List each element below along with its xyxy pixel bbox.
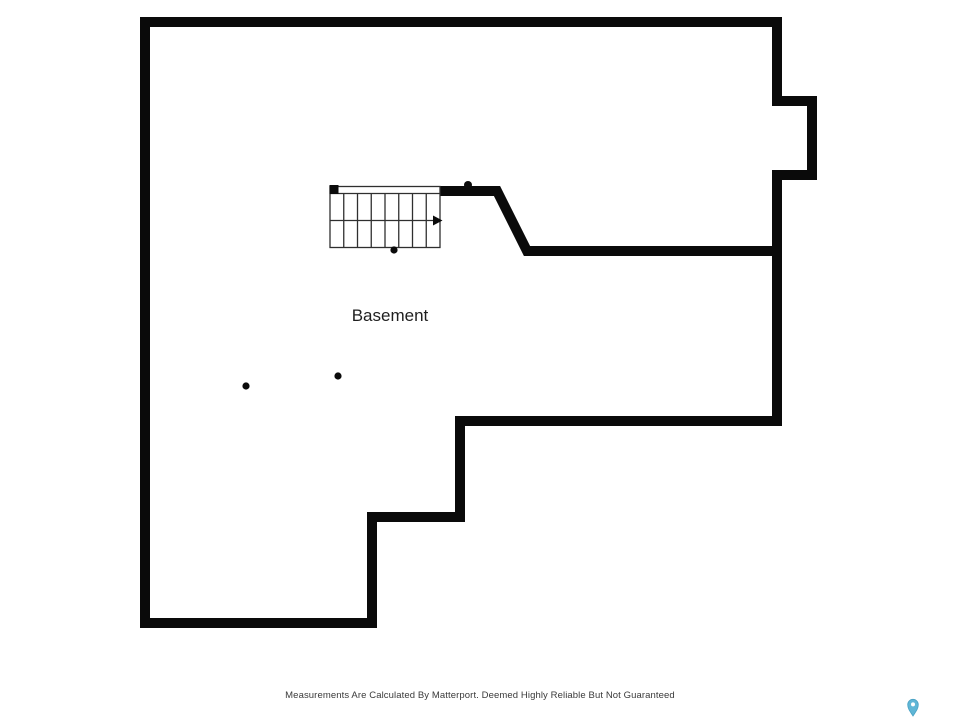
point-marker [242,382,249,389]
point-marker [334,372,341,379]
map-pin-icon [908,699,919,716]
floor-plan-canvas: Basement Measurements Are Calculated By … [0,0,960,720]
point-marker [464,181,472,189]
interior-wall [438,191,779,251]
disclaimer-text: Measurements Are Calculated By Matterpor… [285,690,675,701]
stairs-start-marker [330,185,339,194]
point-marker [390,246,397,253]
map-pin-body [908,699,919,716]
staircase [330,185,443,248]
floor-plan-page: Basement Measurements Are Calculated By … [0,0,960,720]
room-label: Basement [352,306,429,325]
map-pin-hole [911,702,915,706]
exterior-walls [145,22,812,623]
